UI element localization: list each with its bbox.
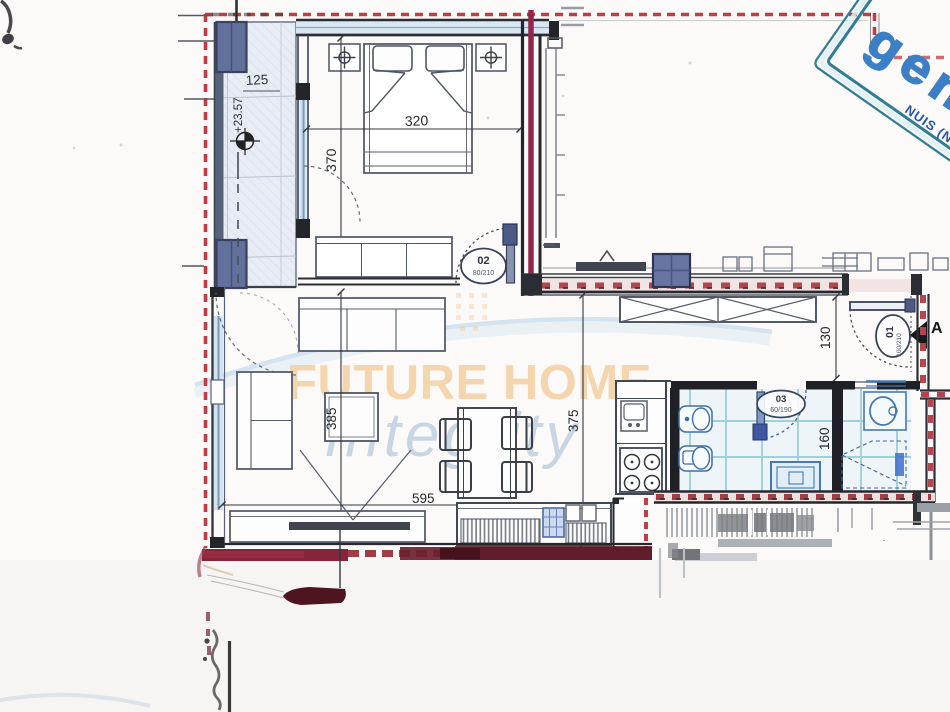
svg-text:370: 370 <box>323 148 339 172</box>
svg-text:320: 320 <box>405 112 429 129</box>
svg-text:385: 385 <box>324 407 339 430</box>
svg-text:160: 160 <box>817 427 832 450</box>
svg-text:595: 595 <box>412 491 435 506</box>
svg-text:60/190: 60/190 <box>770 407 792 414</box>
svg-text:125: 125 <box>245 72 268 88</box>
svg-text:+23.57: +23.57 <box>233 98 245 134</box>
svg-text:A: A <box>931 320 943 337</box>
svg-text:375: 375 <box>566 409 581 432</box>
svg-text:01: 01 <box>884 326 896 338</box>
svg-text:03: 03 <box>776 394 787 405</box>
svg-text:100/210: 100/210 <box>896 333 903 357</box>
svg-text:02: 02 <box>477 255 489 267</box>
svg-text:80/210: 80/210 <box>473 270 495 277</box>
svg-text:130: 130 <box>818 326 833 349</box>
